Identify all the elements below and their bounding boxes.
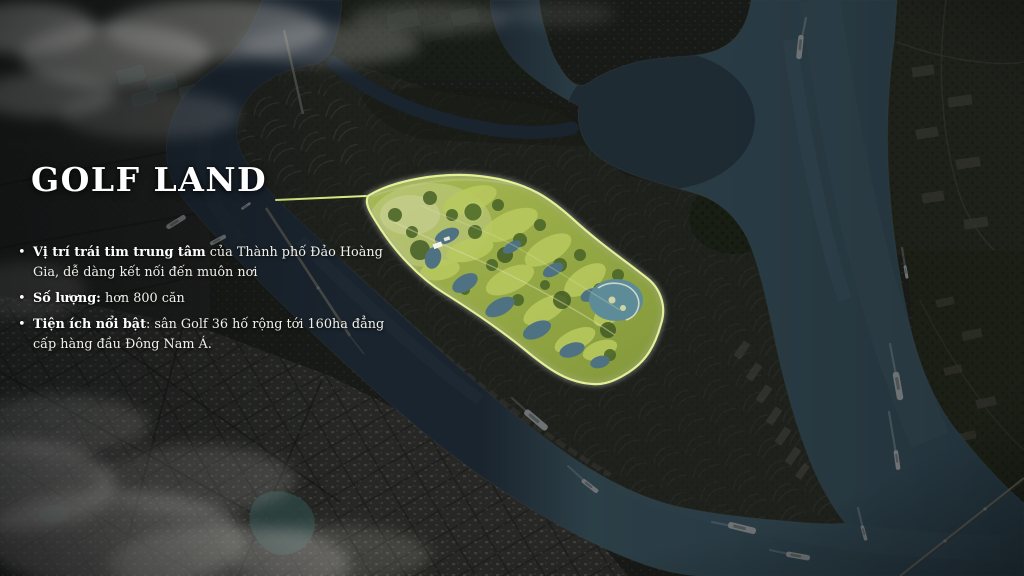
aerial-map (0, 0, 1024, 576)
vignette (0, 0, 1024, 576)
golf-land-slide: GOLF LAND • Vị trí trái tim trung tâm củ… (0, 0, 1024, 576)
